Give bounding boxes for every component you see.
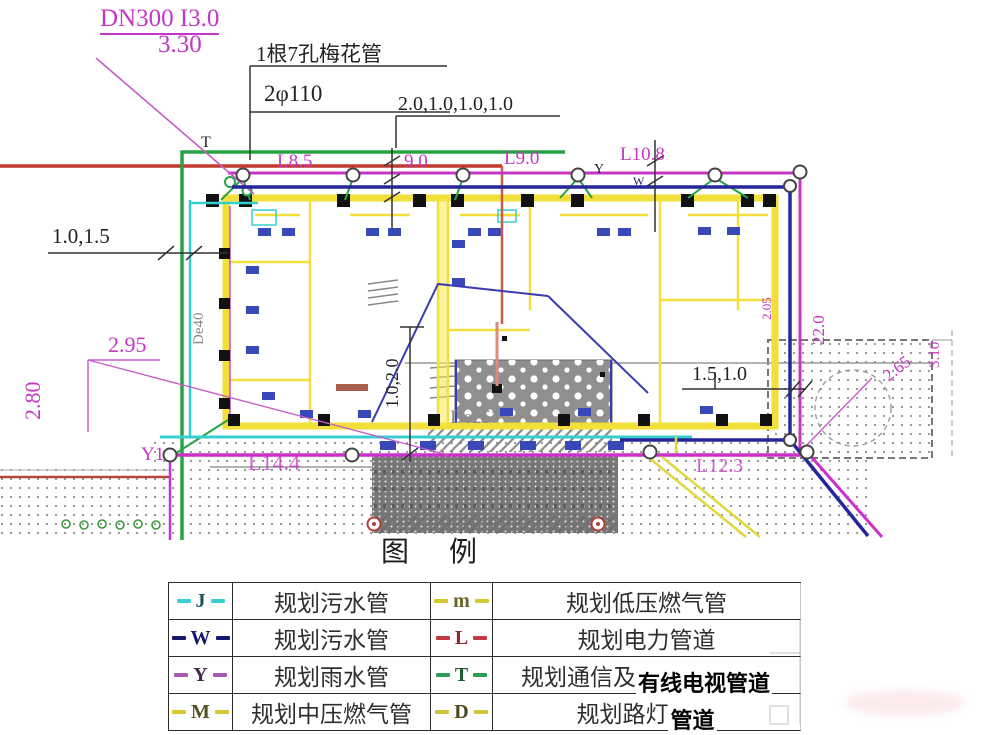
legend-symbol-w: W <box>169 620 233 657</box>
de257-label: De257 <box>450 408 501 427</box>
patched-bold-text: 有线电视管道 <box>636 666 772 698</box>
length-l144: L14.4 <box>248 452 300 474</box>
legend-label: 规划通信及 有线电视管道 <box>493 657 801 694</box>
legend-label: 规划污水管 <box>233 620 431 657</box>
legend-label: 规划路灯 管道 <box>493 694 801 731</box>
elev-280: 2.80 <box>22 382 44 421</box>
length-l90: L9.0 <box>504 149 539 168</box>
legend-label: 规划中压燃气管 <box>233 694 431 731</box>
legend-symbol-mm: M <box>169 694 233 731</box>
pipe-dash-icon <box>215 710 229 714</box>
pipe-dash-icon <box>434 599 448 603</box>
mark-y: Y <box>594 163 604 177</box>
legend-symbol-y: Y <box>169 657 233 694</box>
pipe-dash-icon <box>473 636 487 640</box>
dn300-elevation: 3.30 <box>158 32 202 57</box>
length-90: 9.0 <box>404 152 428 171</box>
watermark-smudge <box>845 690 965 716</box>
pipe-dash-icon <box>213 673 227 677</box>
legend-label: 规划低压燃气管 <box>493 583 801 620</box>
de40-label: De40 <box>192 313 207 346</box>
legend-label: 规划雨水管 <box>233 657 431 694</box>
plum-tube-note-line1: 1根7孔梅花管 <box>256 44 382 65</box>
pipe-dash-icon <box>436 636 450 640</box>
dims-top: 2.0,1.0,1.0,1.0 <box>398 94 513 114</box>
patched-bold-text: 管道 <box>668 703 716 735</box>
dims-mid: 1.0,2.0 <box>383 359 401 409</box>
mark-w: W <box>633 175 644 187</box>
legend-symbol-m: m <box>431 583 493 620</box>
structure-block-lower <box>368 455 619 533</box>
pipe-dash-icon <box>174 673 188 677</box>
length-l85: L8.5 <box>277 152 312 171</box>
legend-label: 规划电力管道 <box>493 620 801 657</box>
dn300-leader <box>96 58 254 194</box>
legend-symbol-t: T <box>431 657 493 694</box>
pipe-dash-icon <box>172 636 186 640</box>
legend-symbol-d: D <box>431 694 493 731</box>
dims-right: 1.5,1.0 <box>692 364 747 384</box>
dimension-leaders <box>48 66 812 462</box>
legend-title: 图 例 <box>381 530 483 570</box>
legend-table: J 规划污水管 m 规划低压燃气管 W 规划污水管 L 规划电力管道 Y 规划雨… <box>168 582 801 731</box>
pipe-dash-icon <box>211 599 225 603</box>
pipe-dash-icon <box>435 710 449 714</box>
pipe-dash-icon <box>177 599 191 603</box>
utility-site-plan-page: DN300 I3.0 3.30 1根7孔梅花管 2φ110 2.0,1.0,1.… <box>0 0 982 735</box>
pipe-dash-icon <box>172 710 186 714</box>
pipe-dash-icon <box>473 673 487 677</box>
elev-310: 3.10 <box>928 342 943 368</box>
ground-hatch-left <box>0 468 170 536</box>
legend-symbol-l: L <box>431 620 493 657</box>
pipe-dash-icon <box>436 673 450 677</box>
y1-label: Y1 <box>141 445 164 464</box>
pipe-dash-icon <box>474 710 488 714</box>
length-l108: L10.8 <box>620 145 665 164</box>
length-l123: L12.3 <box>696 456 743 476</box>
pipe-dash-icon <box>475 599 489 603</box>
plum-tube-note-line2: 2φ110 <box>264 82 322 105</box>
elev-295: 2.95 <box>108 334 147 356</box>
legend-label: 规划污水管 <box>233 583 431 620</box>
mark-t: T <box>201 135 211 151</box>
length-220: 22.0 <box>810 315 827 345</box>
pipe-dash-icon <box>216 636 230 640</box>
dims-left: 1.0,1.5 <box>52 226 110 247</box>
legend-symbol-j: J <box>169 583 233 620</box>
elev-205: 2.05 <box>760 297 773 320</box>
